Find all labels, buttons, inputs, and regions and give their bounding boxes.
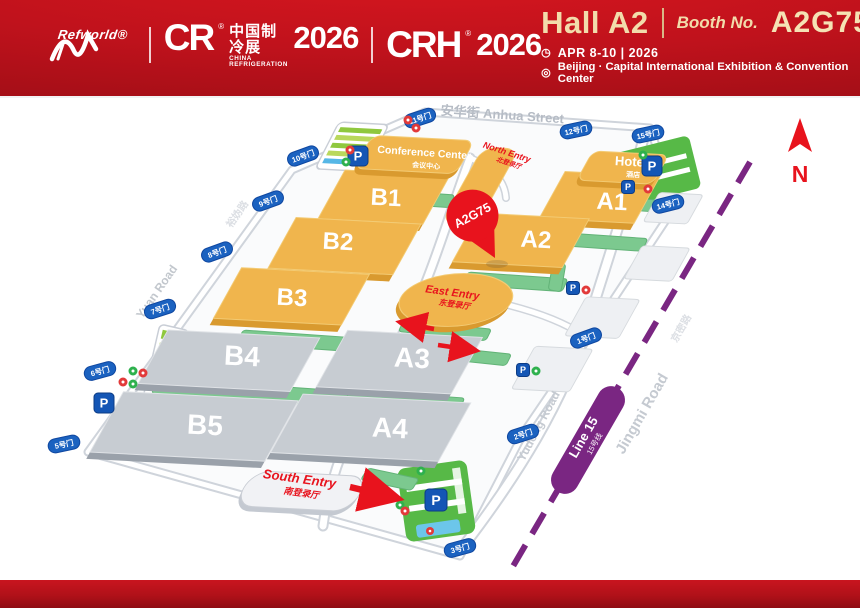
parking-icon: P <box>517 364 530 377</box>
date-row: ◷ APR 8-10 | 2026 <box>541 46 860 60</box>
info-divider <box>662 8 664 38</box>
parking-icon: P <box>567 282 580 295</box>
crh-wordmark: CRH <box>386 28 460 61</box>
location-icon: ◎ <box>541 68 551 79</box>
svg-text:P: P <box>625 182 631 192</box>
north-arrow-icon <box>788 118 812 152</box>
transit-dot <box>639 151 648 160</box>
transit-dot <box>342 158 351 167</box>
crh-year: 2026 <box>476 29 541 60</box>
header-divider <box>149 27 151 63</box>
parking-icon: P <box>622 181 635 194</box>
parking-icon: P <box>94 393 114 413</box>
svg-text:P: P <box>354 149 363 164</box>
svg-text:P: P <box>100 396 109 411</box>
svg-text:P: P <box>431 492 440 508</box>
cr-wordmark: CR <box>164 21 213 54</box>
hall-a4 <box>267 394 471 468</box>
footer-bar <box>0 580 860 608</box>
hall-b3-label: B3 <box>276 284 308 313</box>
jingmi-road-label-cn: 京密路 <box>668 311 695 344</box>
compass-north: N <box>788 118 812 187</box>
booth-number: A2G75 <box>771 6 860 40</box>
hall-a4-label: A4 <box>371 412 409 445</box>
transit-dot <box>644 185 653 194</box>
transit-dot <box>412 124 421 133</box>
booth-label: Booth No. <box>677 13 758 33</box>
hall-booth-row: Hall A2 Booth No. A2G75 <box>541 5 860 41</box>
transit-dot <box>532 367 541 376</box>
booth-info: Hall A2 Booth No. A2G75 ◷ APR 8-10 | 202… <box>541 5 860 85</box>
cr-subtitle: 中国制冷展 CHINA REFRIGERATION <box>229 24 288 69</box>
clock-icon: ◷ <box>541 48 551 59</box>
transit-dot <box>401 507 410 516</box>
svg-text:P: P <box>520 365 526 375</box>
transit-dot <box>129 367 138 376</box>
gate-pill: 6号门 <box>83 360 118 382</box>
hall-a3-label: A3 <box>393 342 430 375</box>
transit-dot <box>582 286 591 295</box>
hall-b2-label: B2 <box>322 228 354 257</box>
hall-b5-label: B5 <box>186 409 223 442</box>
transit-dot <box>139 369 148 378</box>
header-banner: Refworld® CR ® 中国制冷展 CHINA REFRIGERATION… <box>0 0 860 98</box>
brand-logos: Refworld® CR ® 中国制冷展 CHINA REFRIGERATION… <box>44 19 541 71</box>
venue-row: ◎ Beijing · Capital International Exhibi… <box>541 61 860 85</box>
hall-b4-label: B4 <box>223 340 261 373</box>
cr-year: 2026 <box>293 22 358 53</box>
site-plan-svg: B1 B2 B3 B4 B5 A1 A2 A3 A4 Conference Ce… <box>0 98 860 580</box>
refworld-logo: Refworld® <box>44 19 136 71</box>
hall-a2-label: A2 <box>520 226 552 255</box>
svg-text:P: P <box>648 159 657 174</box>
cr-logo: CR ® 中国制冷展 CHINA REFRIGERATION 2026 <box>164 21 359 69</box>
registered-icon: ® <box>465 30 471 38</box>
svg-text:P: P <box>570 283 576 293</box>
refworld-wordmark: Refworld® <box>57 27 129 42</box>
page: Refworld® CR ® 中国制冷展 CHINA REFRIGERATION… <box>0 0 860 608</box>
parking-icon: P <box>425 489 447 511</box>
header-divider <box>371 27 373 63</box>
transit-dot <box>426 527 434 535</box>
jingmi-road-label: Jingmi Road <box>612 371 672 457</box>
event-date: APR 8-10 | 2026 <box>558 46 659 60</box>
hall-b1-label: B1 <box>370 184 402 213</box>
north-label: N <box>792 161 809 187</box>
hall-title: Hall A2 <box>541 5 648 41</box>
venue-name: Beijing · Capital International Exhibiti… <box>558 61 860 85</box>
pin-shadow <box>486 260 508 268</box>
crh-logo: CRH ® 2026 <box>386 28 541 61</box>
cr-english: CHINA REFRIGERATION <box>229 56 288 69</box>
registered-icon: ® <box>218 23 224 31</box>
cr-chinese: 中国制冷展 <box>229 24 288 56</box>
gate-pill: 5号门 <box>47 434 81 454</box>
transit-dot <box>346 146 355 155</box>
venue-map: B1 B2 B3 B4 B5 A1 A2 A3 A4 Conference Ce… <box>0 98 860 580</box>
transit-dot <box>404 116 413 125</box>
transit-dot <box>129 380 138 389</box>
transit-dot <box>119 378 128 387</box>
transit-dot <box>417 467 426 476</box>
